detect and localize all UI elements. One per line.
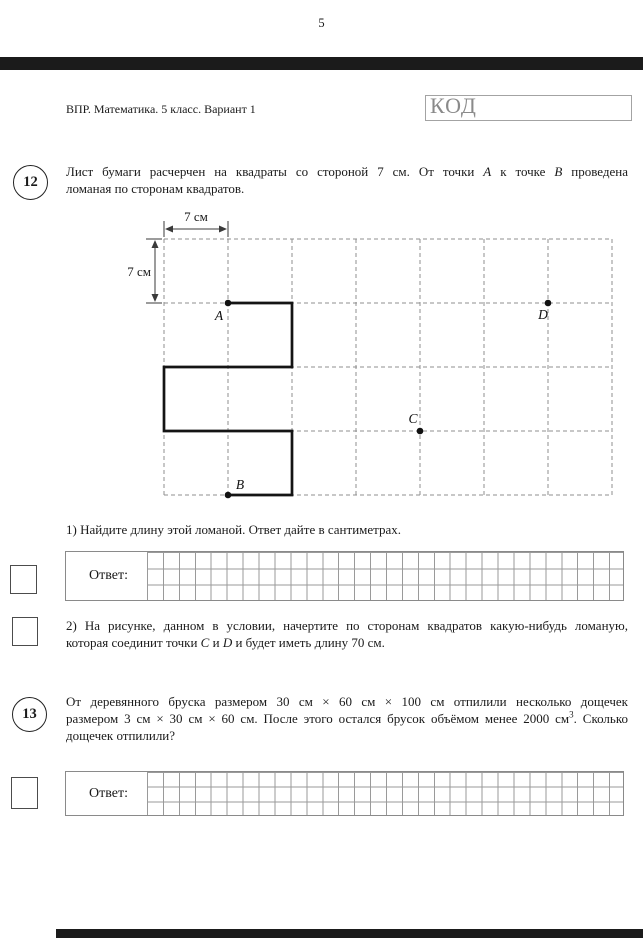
- problem-13-number-badge: 13: [12, 697, 47, 732]
- arrowhead: [152, 294, 159, 302]
- point-b: [225, 492, 232, 499]
- top-separator-bar: [0, 57, 643, 70]
- problem-13-text: От деревянного бруска размером 30 см × 6…: [66, 693, 628, 744]
- point-label-d: D: [537, 307, 548, 322]
- problem-12-intro-line1: Лист бумаги расчерчен на квадраты со сто…: [66, 163, 628, 180]
- answer-grid-part1[interactable]: [147, 552, 623, 600]
- problem-12-intro-line2: ломаная по сторонам квадратов.: [66, 180, 628, 197]
- arrowhead: [219, 226, 227, 233]
- score-checkbox-part1[interactable]: [10, 565, 37, 594]
- point-c: [417, 428, 424, 435]
- answer-label: Ответ:: [89, 772, 128, 815]
- point-a: [225, 300, 232, 307]
- answer-grid-problem13[interactable]: [147, 772, 623, 815]
- problem-13-line2: размером 3 см × 30 см × 60 см. После это…: [66, 710, 628, 727]
- point-label-a: A: [214, 308, 224, 323]
- problem-12-part2-line2: которая соединит точки C и D и будет име…: [66, 634, 628, 651]
- arrowhead: [165, 226, 173, 233]
- problem-13-line1: От деревянного бруска размером 30 см × 6…: [66, 693, 628, 710]
- problem-12-part2-text: 2) На рисунке, данном в условии, начерти…: [66, 617, 628, 651]
- problem-12-part1-text: 1) Найдите длину этой ломаной. Ответ дай…: [66, 521, 628, 538]
- code-label: КОД: [430, 93, 631, 119]
- code-box[interactable]: КОД: [425, 95, 632, 121]
- bottom-separator-bar: [56, 929, 643, 938]
- problem-12-part2-line1: 2) На рисунке, данном в условии, начерти…: [66, 617, 628, 634]
- point-d: [545, 300, 552, 307]
- problem-12-intro: Лист бумаги расчерчен на квадраты со сто…: [66, 163, 628, 197]
- answer-label: Ответ:: [89, 552, 128, 600]
- problem-13-line3: дощечек отпилили?: [66, 727, 628, 744]
- answer-box-part1: Ответ:: [65, 551, 624, 601]
- score-checkbox-problem13[interactable]: [11, 777, 38, 809]
- page-number: 5: [0, 16, 643, 31]
- problem-12-number-badge: 12: [13, 165, 48, 200]
- header-title: ВПР. Математика. 5 класс. Вариант 1: [66, 102, 256, 117]
- answer-box-problem13: Ответ:: [65, 771, 624, 816]
- dim-label-top: 7 см: [184, 209, 208, 224]
- point-label-b: B: [236, 477, 244, 492]
- geometry-figure: 7 см7 смABCD: [100, 200, 635, 512]
- point-label-c: C: [408, 411, 418, 426]
- dim-label-left: 7 см: [127, 264, 151, 279]
- arrowhead: [152, 240, 159, 248]
- score-checkbox-part2[interactable]: [12, 617, 38, 646]
